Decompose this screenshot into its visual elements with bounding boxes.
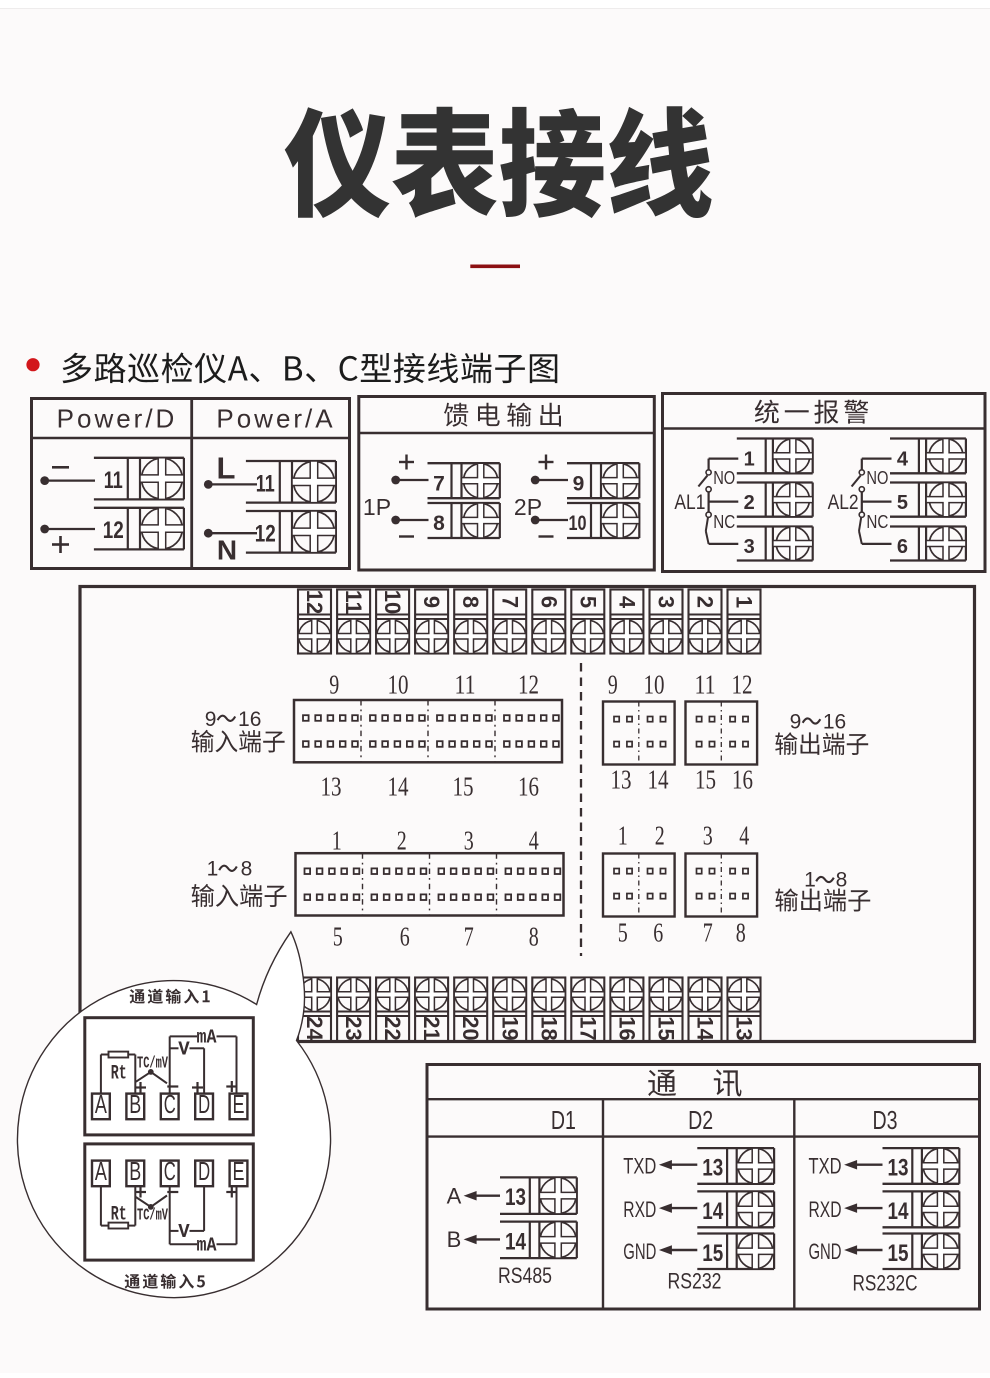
- svg-text:11: 11: [455, 669, 476, 699]
- svg-text:11: 11: [104, 467, 123, 494]
- svg-text:RXD: RXD: [623, 1197, 656, 1222]
- svg-text:D2: D2: [688, 1105, 713, 1135]
- svg-text:4: 4: [614, 596, 639, 609]
- svg-text:3: 3: [464, 826, 474, 856]
- svg-text:2P: 2P: [514, 494, 542, 520]
- svg-text:mA: mA: [197, 1027, 218, 1049]
- svg-text:15: 15: [654, 1016, 679, 1040]
- svg-text:23: 23: [341, 1016, 366, 1040]
- svg-text:8: 8: [433, 512, 445, 535]
- svg-text:6: 6: [400, 922, 410, 952]
- svg-text:10: 10: [569, 512, 587, 535]
- svg-text:E: E: [233, 1089, 245, 1119]
- svg-text:7: 7: [703, 918, 713, 948]
- svg-text:2: 2: [744, 492, 755, 514]
- svg-text:7: 7: [433, 472, 445, 495]
- svg-text:7: 7: [464, 922, 474, 952]
- svg-text:10: 10: [388, 669, 409, 699]
- svg-text:14: 14: [702, 1198, 724, 1225]
- svg-text:10: 10: [380, 590, 405, 614]
- svg-text:NC: NC: [866, 512, 888, 532]
- svg-text:11: 11: [695, 669, 716, 699]
- svg-text:17: 17: [575, 1016, 600, 1040]
- svg-text:14: 14: [693, 1016, 718, 1041]
- svg-text:7: 7: [497, 596, 522, 608]
- svg-text:A: A: [447, 1183, 462, 1208]
- svg-text:Power/D: Power/D: [57, 404, 178, 434]
- svg-text:9: 9: [419, 596, 444, 608]
- svg-text:8: 8: [836, 869, 848, 892]
- svg-text:RS232: RS232: [668, 1269, 722, 1294]
- svg-text:TXD: TXD: [623, 1154, 656, 1179]
- svg-text:D3: D3: [873, 1105, 898, 1135]
- svg-text:12: 12: [302, 590, 327, 614]
- svg-text:10: 10: [644, 669, 665, 699]
- svg-text:12: 12: [732, 669, 753, 699]
- svg-text:A: A: [95, 1156, 107, 1186]
- svg-text:D: D: [198, 1156, 210, 1186]
- svg-text:9: 9: [205, 708, 217, 731]
- svg-text:5: 5: [333, 922, 343, 952]
- svg-text:6: 6: [536, 596, 561, 608]
- svg-text:Power/A: Power/A: [216, 404, 335, 434]
- svg-text:8: 8: [529, 922, 539, 952]
- svg-text:1: 1: [207, 858, 219, 881]
- svg-text:NO: NO: [713, 468, 735, 488]
- svg-text:14: 14: [505, 1228, 527, 1255]
- svg-text:13: 13: [505, 1184, 526, 1211]
- svg-text:5: 5: [897, 492, 908, 514]
- svg-text:9: 9: [608, 669, 618, 699]
- svg-text:16: 16: [614, 1016, 639, 1040]
- svg-text:RS232C: RS232C: [853, 1271, 918, 1296]
- svg-text:13: 13: [611, 765, 632, 795]
- svg-text:TXD: TXD: [809, 1154, 842, 1179]
- svg-text:18: 18: [536, 1016, 561, 1040]
- svg-text:15: 15: [702, 1240, 723, 1267]
- svg-text:22: 22: [380, 1016, 405, 1040]
- svg-text:NC: NC: [713, 512, 735, 532]
- svg-text:C: C: [164, 1156, 176, 1186]
- svg-text:6: 6: [897, 536, 908, 558]
- svg-text:4: 4: [529, 826, 539, 856]
- svg-text:16: 16: [823, 711, 846, 734]
- svg-text:20: 20: [458, 1016, 483, 1040]
- svg-text:TC/mV: TC/mV: [137, 1207, 168, 1226]
- svg-text:B: B: [129, 1156, 141, 1186]
- svg-text:15: 15: [453, 772, 474, 802]
- svg-text:14: 14: [888, 1198, 910, 1225]
- svg-text:1: 1: [744, 449, 755, 471]
- svg-text:N: N: [217, 535, 237, 566]
- svg-text:9: 9: [573, 472, 585, 495]
- svg-text:5: 5: [575, 596, 600, 608]
- svg-text:16: 16: [518, 772, 539, 802]
- svg-text:1: 1: [732, 596, 757, 608]
- svg-text:1: 1: [332, 826, 342, 856]
- svg-text:6: 6: [653, 918, 663, 948]
- svg-text:9: 9: [790, 711, 802, 734]
- svg-text:16: 16: [238, 708, 261, 731]
- svg-text:8: 8: [241, 858, 253, 881]
- svg-text:14: 14: [648, 765, 669, 795]
- svg-text:2: 2: [397, 826, 407, 856]
- svg-text:D1: D1: [551, 1105, 576, 1135]
- svg-text:8: 8: [458, 596, 483, 608]
- svg-text:1P: 1P: [363, 494, 391, 520]
- svg-text:Rt: Rt: [111, 1204, 127, 1227]
- svg-text:RXD: RXD: [809, 1197, 842, 1222]
- svg-text:3: 3: [744, 536, 755, 558]
- svg-text:V: V: [178, 1039, 190, 1061]
- svg-text:13: 13: [702, 1155, 723, 1182]
- svg-text:RS485: RS485: [498, 1263, 552, 1288]
- svg-text:NO: NO: [866, 468, 888, 488]
- svg-text:11: 11: [341, 590, 366, 614]
- svg-text:AL2: AL2: [828, 491, 859, 514]
- svg-text:2: 2: [655, 821, 665, 851]
- svg-text:8: 8: [736, 918, 746, 948]
- svg-text:1: 1: [618, 821, 628, 851]
- svg-text:9: 9: [329, 669, 339, 699]
- svg-text:3: 3: [654, 596, 679, 608]
- svg-text:TC/mV: TC/mV: [137, 1055, 168, 1074]
- svg-text:Rt: Rt: [111, 1063, 127, 1086]
- svg-text:11: 11: [256, 470, 275, 497]
- svg-text:2: 2: [693, 596, 718, 608]
- svg-text:21: 21: [419, 1016, 444, 1040]
- svg-text:GND: GND: [809, 1239, 842, 1264]
- svg-text:13: 13: [732, 1016, 757, 1040]
- svg-text:AL1: AL1: [674, 491, 705, 514]
- svg-text:4: 4: [897, 449, 909, 471]
- svg-text:mA: mA: [197, 1235, 218, 1257]
- svg-text:4: 4: [739, 821, 749, 851]
- svg-text:E: E: [233, 1156, 245, 1186]
- svg-text:GND: GND: [623, 1239, 656, 1264]
- svg-text:24: 24: [302, 1016, 327, 1041]
- svg-text:15: 15: [888, 1240, 909, 1267]
- svg-text:L: L: [217, 451, 236, 486]
- svg-text:12: 12: [255, 520, 276, 547]
- svg-text:13: 13: [321, 772, 342, 802]
- svg-text:13: 13: [888, 1155, 909, 1182]
- svg-text:14: 14: [388, 772, 409, 802]
- svg-text:3: 3: [703, 821, 713, 851]
- svg-text:12: 12: [518, 669, 539, 699]
- svg-text:16: 16: [732, 765, 753, 795]
- svg-text:V: V: [178, 1221, 190, 1243]
- svg-text:B: B: [447, 1227, 462, 1252]
- svg-text:5: 5: [618, 918, 628, 948]
- svg-text:1: 1: [804, 869, 816, 892]
- svg-text:15: 15: [695, 765, 716, 795]
- svg-text:12: 12: [103, 517, 124, 544]
- svg-text:19: 19: [497, 1016, 522, 1040]
